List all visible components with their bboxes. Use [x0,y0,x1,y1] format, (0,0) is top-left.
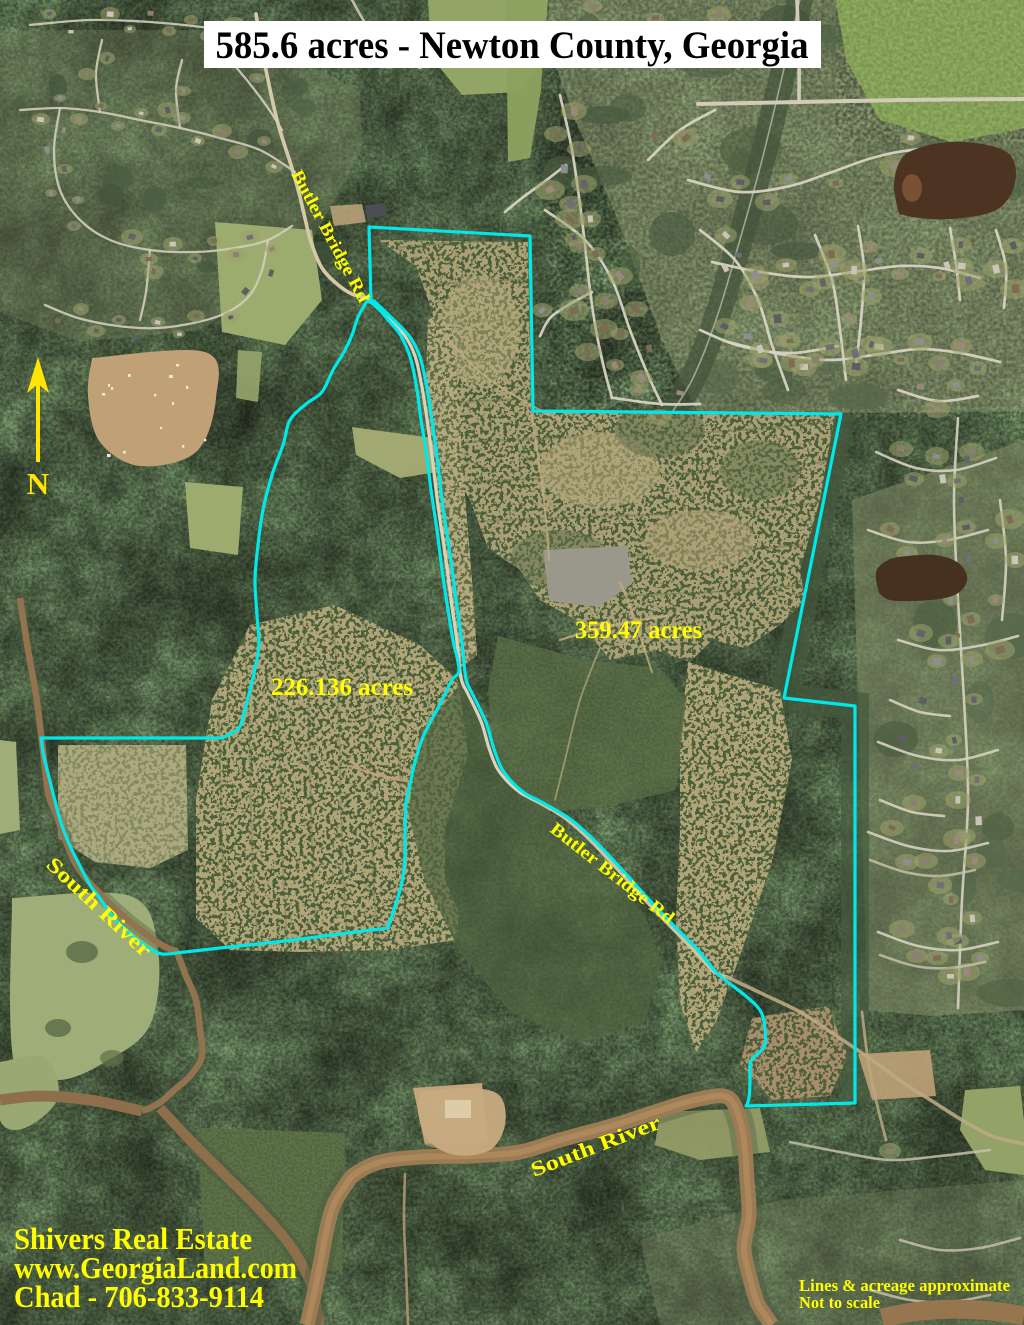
svg-text:N: N [27,466,49,501]
svg-text:226.136 acres: 226.136 acres [271,674,413,701]
svg-text:Not to scale: Not to scale [799,1293,880,1312]
svg-text:359.47 acres: 359.47 acres [575,617,702,644]
svg-text:Chad - 706-833-9114: Chad - 706-833-9114 [14,1279,264,1314]
svg-text:585.6 acres - Newton County, G: 585.6 acres - Newton County, Georgia [216,24,809,67]
